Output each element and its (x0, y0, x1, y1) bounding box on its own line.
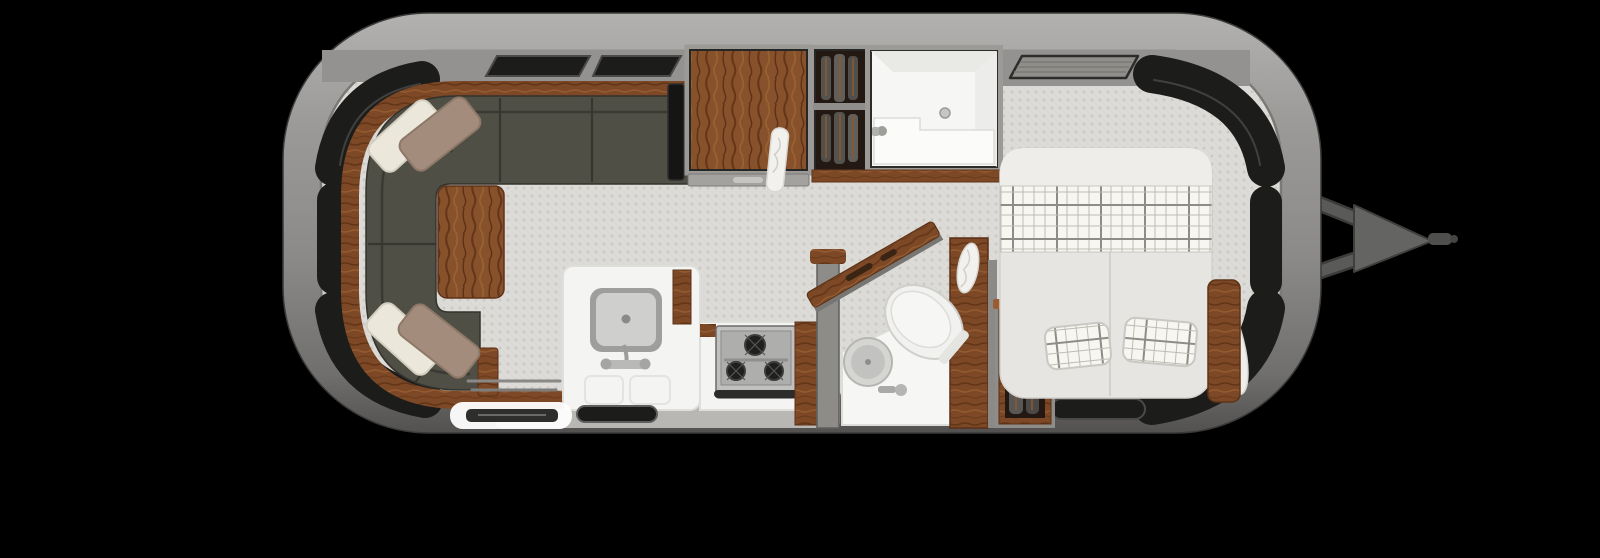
oven-handle (714, 390, 798, 398)
plaid-pillow-left (1044, 322, 1112, 370)
hitch-tongue (1428, 233, 1452, 245)
tv-panel (668, 84, 684, 180)
window-top-right (593, 56, 681, 76)
vanity-faucet-knob (895, 384, 907, 396)
nightstand (1208, 280, 1240, 402)
window-top-left (486, 56, 590, 76)
window-bedroom-bottom (1051, 399, 1145, 419)
plaid-pillow-right (1122, 317, 1198, 367)
bed-head-fold (1000, 148, 1212, 186)
floor-drain (940, 108, 950, 118)
faucet-handle-right (640, 359, 651, 370)
shower-arm (872, 127, 879, 136)
plaid-blanket-band (1000, 186, 1212, 252)
roof-vent (1010, 56, 1138, 78)
vanity-faucet-bar (878, 386, 896, 393)
counter-wood-trim (673, 270, 691, 324)
sink-drain (622, 315, 631, 324)
three-burner-stove (714, 326, 798, 398)
shower-wall-shade-top (871, 51, 997, 72)
pantry-cabinet (795, 322, 817, 425)
wall-wood-cap (810, 249, 846, 264)
wood-shelf-band (812, 170, 1000, 182)
ledge-handle (733, 177, 763, 183)
entry-door-seal (577, 406, 657, 422)
hitch-tip (1450, 235, 1458, 243)
bathroom (806, 221, 997, 428)
overhead-wardrobe-cabinet (690, 50, 807, 170)
vanity-drain (865, 359, 871, 365)
cutting-board (700, 324, 716, 337)
wood-table (438, 186, 504, 298)
floor-plan-canvas (0, 0, 1600, 558)
closet-shelf-divider (813, 103, 870, 110)
floor-plan-svg (0, 0, 1600, 558)
faucet-handle-left (601, 359, 612, 370)
midship-storage (668, 48, 1000, 193)
